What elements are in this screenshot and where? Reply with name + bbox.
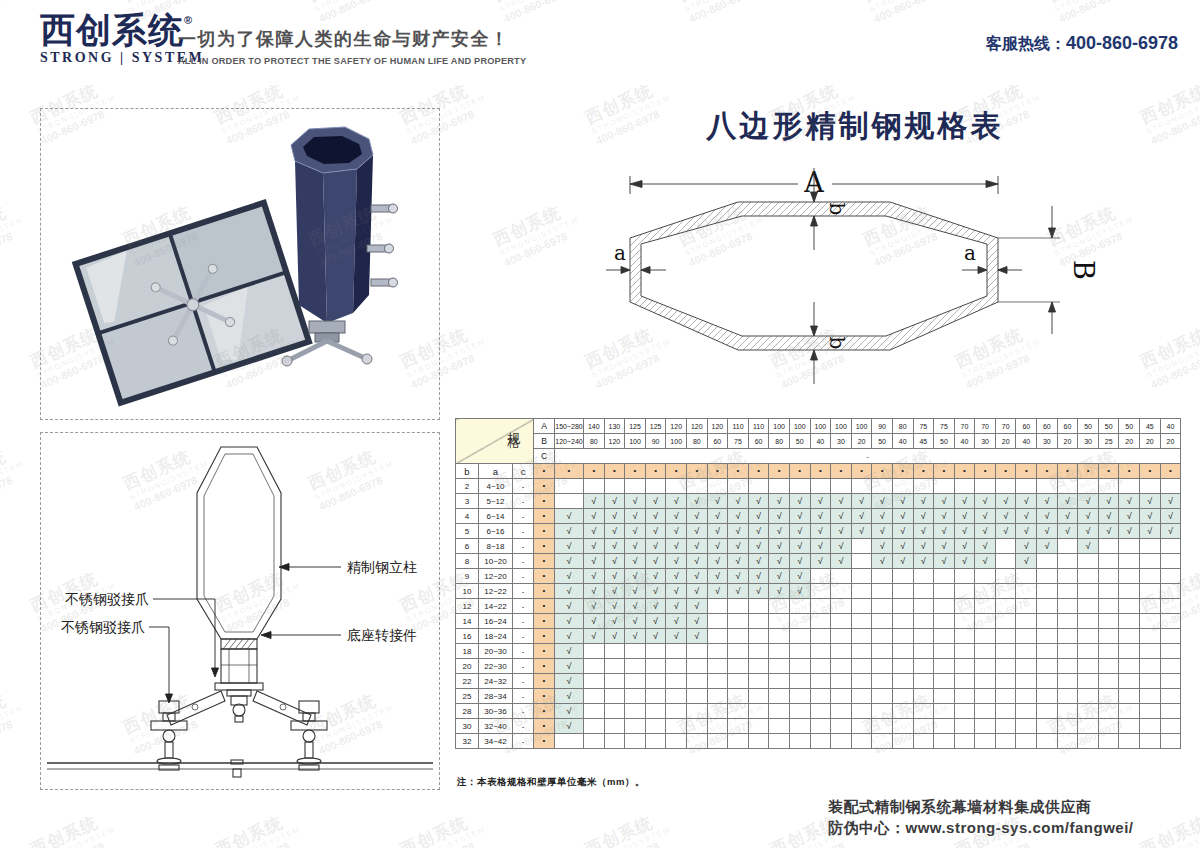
empty-cell xyxy=(1078,644,1099,659)
bullet-cell: • xyxy=(810,464,831,479)
check-cell: √ xyxy=(604,509,625,524)
empty-cell xyxy=(934,704,955,719)
empty-cell xyxy=(1098,569,1119,584)
empty-cell xyxy=(604,644,625,659)
check-cell: √ xyxy=(584,569,605,584)
check-cell: √ xyxy=(913,539,934,554)
thickness-a-range: 18~24 xyxy=(479,629,513,644)
bullet-cell: • xyxy=(534,614,555,629)
check-cell: √ xyxy=(584,524,605,539)
empty-cell xyxy=(954,704,975,719)
empty-cell xyxy=(1160,644,1181,659)
check-cell: √ xyxy=(555,539,584,554)
thickness-b-value: 8 xyxy=(456,554,479,569)
empty-cell xyxy=(1057,704,1078,719)
empty-cell xyxy=(995,674,1016,689)
bullet-cell: • xyxy=(604,464,625,479)
empty-cell xyxy=(934,614,955,629)
empty-cell xyxy=(975,479,996,494)
check-cell: √ xyxy=(1016,524,1037,539)
check-cell: √ xyxy=(728,509,749,524)
empty-cell xyxy=(769,659,790,674)
check-cell: √ xyxy=(769,524,790,539)
empty-cell xyxy=(728,689,749,704)
table-row: 1618~24-•√√√√√√√ xyxy=(456,629,1181,644)
check-cell: √ xyxy=(954,509,975,524)
empty-cell xyxy=(1140,644,1161,659)
check-cell: √ xyxy=(584,494,605,509)
bullet-cell: • xyxy=(1016,464,1037,479)
empty-cell xyxy=(1119,539,1140,554)
bullet-cell: • xyxy=(534,509,555,524)
empty-cell xyxy=(728,704,749,719)
check-cell: √ xyxy=(604,494,625,509)
empty-cell xyxy=(995,569,1016,584)
spec-A-value: 130 xyxy=(604,419,625,434)
empty-cell xyxy=(851,554,872,569)
empty-cell xyxy=(1016,644,1037,659)
thickness-b-value: 6 xyxy=(456,539,479,554)
bullet-cell: • xyxy=(645,464,666,479)
empty-cell xyxy=(666,719,687,734)
thickness-a-range: 14~22 xyxy=(479,599,513,614)
empty-cell xyxy=(851,614,872,629)
spec-A-value: 100 xyxy=(769,419,790,434)
empty-cell xyxy=(975,689,996,704)
check-cell: √ xyxy=(625,539,646,554)
spec-B-value: 100 xyxy=(666,434,687,449)
empty-cell xyxy=(995,479,1016,494)
check-cell: √ xyxy=(892,494,913,509)
supplier-footer: 装配式精制钢系统幕墙材料集成供应商 防伪中心：www.strong-sys.co… xyxy=(828,796,1133,838)
empty-cell xyxy=(748,689,769,704)
table-row: 2830~36-•√ xyxy=(456,704,1181,719)
empty-cell xyxy=(954,599,975,614)
empty-cell xyxy=(913,479,934,494)
bullet-cell: • xyxy=(584,464,605,479)
empty-cell xyxy=(789,614,810,629)
check-cell: √ xyxy=(604,629,625,644)
empty-cell xyxy=(1119,734,1140,749)
empty-cell xyxy=(1057,674,1078,689)
empty-cell xyxy=(1098,674,1119,689)
spec-A-value: 80 xyxy=(892,419,913,434)
empty-cell xyxy=(975,599,996,614)
empty-cell xyxy=(1160,689,1181,704)
spec-A-value: 60 xyxy=(1057,419,1078,434)
empty-cell xyxy=(913,734,934,749)
bullet-cell: • xyxy=(789,464,810,479)
empty-cell xyxy=(934,479,955,494)
tagline: 一切为了保障人类的生命与财产安全！ ALL IN ORDER TO PROTEC… xyxy=(178,27,526,66)
bullet-cell: • xyxy=(831,464,852,479)
empty-cell xyxy=(769,719,790,734)
empty-cell xyxy=(1037,644,1058,659)
empty-cell xyxy=(604,479,625,494)
empty-cell xyxy=(625,659,646,674)
spec-A-value: 90 xyxy=(872,419,893,434)
empty-cell xyxy=(831,644,852,659)
empty-cell xyxy=(1037,599,1058,614)
check-cell: √ xyxy=(1140,509,1161,524)
check-cell: √ xyxy=(707,509,728,524)
empty-cell xyxy=(789,629,810,644)
check-cell: √ xyxy=(769,554,790,569)
empty-cell xyxy=(872,719,893,734)
check-cell: √ xyxy=(831,509,852,524)
watermark-tile: 西创系统STRONG|SYSTEM400-860-6978 xyxy=(583,808,677,848)
empty-cell xyxy=(666,674,687,689)
empty-cell xyxy=(1098,539,1119,554)
spec-A-value: 70 xyxy=(954,419,975,434)
empty-cell xyxy=(851,479,872,494)
empty-cell xyxy=(954,734,975,749)
empty-cell xyxy=(748,659,769,674)
empty-cell xyxy=(555,479,584,494)
empty-cell xyxy=(1037,704,1058,719)
empty-cell xyxy=(1057,479,1078,494)
empty-cell xyxy=(851,659,872,674)
empty-cell xyxy=(686,704,707,719)
empty-cell xyxy=(810,689,831,704)
check-cell: √ xyxy=(748,509,769,524)
check-cell: √ xyxy=(954,554,975,569)
empty-cell xyxy=(851,539,872,554)
empty-cell xyxy=(1140,614,1161,629)
empty-cell xyxy=(1016,584,1037,599)
empty-cell xyxy=(789,704,810,719)
empty-cell xyxy=(851,674,872,689)
check-cell: √ xyxy=(769,569,790,584)
empty-cell xyxy=(1078,674,1099,689)
thickness-a-range: 6~14 xyxy=(479,509,513,524)
empty-cell xyxy=(1037,734,1058,749)
check-cell: √ xyxy=(666,509,687,524)
empty-cell xyxy=(1057,584,1078,599)
empty-cell xyxy=(625,704,646,719)
empty-cell xyxy=(995,659,1016,674)
empty-cell xyxy=(1078,719,1099,734)
empty-cell xyxy=(975,584,996,599)
check-cell: √ xyxy=(604,569,625,584)
spec-B-value: 20 xyxy=(995,434,1016,449)
empty-cell xyxy=(1098,704,1119,719)
check-cell: √ xyxy=(584,629,605,644)
spec-A-value: 75 xyxy=(913,419,934,434)
empty-cell xyxy=(975,674,996,689)
empty-cell xyxy=(892,629,913,644)
check-cell: √ xyxy=(728,494,749,509)
empty-cell xyxy=(789,644,810,659)
check-cell: √ xyxy=(666,614,687,629)
empty-cell xyxy=(686,479,707,494)
bullet-cell: • xyxy=(1057,464,1078,479)
empty-cell xyxy=(934,674,955,689)
check-cell: √ xyxy=(769,584,790,599)
check-cell: √ xyxy=(831,524,852,539)
check-cell: √ xyxy=(872,524,893,539)
thickness-c-value: - xyxy=(513,614,534,629)
empty-cell xyxy=(1057,644,1078,659)
watermark-tile: 西创系统STRONG|SYSTEM400-860-6978 xyxy=(0,442,30,513)
thickness-c-value: - xyxy=(513,569,534,584)
empty-cell xyxy=(1160,629,1181,644)
empty-cell xyxy=(1098,629,1119,644)
empty-cell xyxy=(913,704,934,719)
empty-cell xyxy=(851,584,872,599)
check-cell: √ xyxy=(769,539,790,554)
table-row: 912~20-•√√√√√√√√√√√√ xyxy=(456,569,1181,584)
spec-A-value: 100 xyxy=(789,419,810,434)
thickness-b-value: 16 xyxy=(456,629,479,644)
check-cell: √ xyxy=(892,554,913,569)
watermark-tile: 西创系统STRONG|SYSTEM400-860-6978 xyxy=(1138,808,1200,848)
thickness-header-a: a xyxy=(479,464,513,479)
spec-B-value: 120~240 xyxy=(555,434,584,449)
check-cell: √ xyxy=(686,509,707,524)
empty-cell xyxy=(686,659,707,674)
check-cell: √ xyxy=(666,494,687,509)
empty-cell xyxy=(1119,479,1140,494)
spec-A-value: 100 xyxy=(831,419,852,434)
empty-cell xyxy=(995,599,1016,614)
check-cell: √ xyxy=(555,689,584,704)
empty-cell xyxy=(954,689,975,704)
check-cell: √ xyxy=(810,539,831,554)
empty-cell xyxy=(995,719,1016,734)
thickness-c-value: - xyxy=(513,494,534,509)
check-cell: √ xyxy=(555,629,584,644)
empty-cell xyxy=(625,689,646,704)
check-cell: √ xyxy=(707,554,728,569)
watermark-tile: 西创系统STRONG|SYSTEM400-860-6978 xyxy=(306,0,400,25)
empty-cell xyxy=(1098,644,1119,659)
empty-cell xyxy=(892,659,913,674)
empty-cell xyxy=(892,719,913,734)
empty-cell xyxy=(584,734,605,749)
bullet-cell: • xyxy=(686,464,707,479)
bullet-cell: • xyxy=(625,464,646,479)
empty-cell xyxy=(1160,719,1181,734)
empty-cell xyxy=(1037,674,1058,689)
check-cell: √ xyxy=(789,569,810,584)
empty-cell xyxy=(769,704,790,719)
empty-cell xyxy=(1119,659,1140,674)
dim-a-right-label: a xyxy=(964,241,976,265)
thickness-b-value: 10 xyxy=(456,584,479,599)
empty-cell xyxy=(995,539,1016,554)
bullet-cell: • xyxy=(748,464,769,479)
watermark-tile: 西创系统STRONG|SYSTEM400-860-6978 xyxy=(676,0,770,25)
spec-B-value: 40 xyxy=(1016,434,1037,449)
check-cell: √ xyxy=(851,494,872,509)
empty-cell xyxy=(934,659,955,674)
empty-cell xyxy=(892,479,913,494)
empty-cell xyxy=(1160,674,1181,689)
thickness-c-value: - xyxy=(513,629,534,644)
empty-cell xyxy=(1037,569,1058,584)
check-cell: √ xyxy=(645,599,666,614)
table-row: 1416~24-•√√√√√√√ xyxy=(456,614,1181,629)
check-cell: √ xyxy=(707,569,728,584)
empty-cell xyxy=(831,569,852,584)
bullet-cell: • xyxy=(851,464,872,479)
thickness-a-range: 24~32 xyxy=(479,674,513,689)
thickness-b-value: 20 xyxy=(456,659,479,674)
empty-cell xyxy=(810,599,831,614)
empty-cell xyxy=(555,734,584,749)
empty-cell xyxy=(1057,719,1078,734)
empty-cell xyxy=(1057,734,1078,749)
bullet-cell: • xyxy=(534,644,555,659)
spec-A-value: 50 xyxy=(1098,419,1119,434)
thickness-b-value: 4 xyxy=(456,509,479,524)
empty-cell xyxy=(1016,689,1037,704)
empty-cell xyxy=(584,659,605,674)
empty-cell xyxy=(1119,614,1140,629)
empty-cell xyxy=(831,659,852,674)
thickness-c-value: - xyxy=(513,599,534,614)
empty-cell xyxy=(810,734,831,749)
spec-A-value: 60 xyxy=(1037,419,1058,434)
spec-B-value: 120 xyxy=(604,434,625,449)
empty-cell xyxy=(645,689,666,704)
spec-A-value: 70 xyxy=(975,419,996,434)
empty-cell xyxy=(1016,569,1037,584)
empty-cell xyxy=(1140,719,1161,734)
thickness-b-value: 2 xyxy=(456,479,479,494)
empty-cell xyxy=(975,704,996,719)
empty-cell xyxy=(625,479,646,494)
empty-cell xyxy=(645,704,666,719)
empty-cell xyxy=(913,569,934,584)
check-cell: √ xyxy=(1037,524,1058,539)
empty-cell xyxy=(1140,674,1161,689)
empty-cell xyxy=(954,644,975,659)
check-cell: √ xyxy=(831,494,852,509)
empty-cell xyxy=(625,674,646,689)
table-row: 3234~42-• xyxy=(456,734,1181,749)
check-cell: √ xyxy=(1140,524,1161,539)
thickness-a-range: 6~16 xyxy=(479,524,513,539)
empty-cell xyxy=(872,659,893,674)
empty-cell xyxy=(666,704,687,719)
spec-A-value: 125 xyxy=(645,419,666,434)
thickness-b-value: 3 xyxy=(456,494,479,509)
empty-cell xyxy=(831,704,852,719)
empty-cell xyxy=(1119,584,1140,599)
empty-cell xyxy=(769,479,790,494)
check-cell: √ xyxy=(686,614,707,629)
empty-cell xyxy=(892,599,913,614)
thickness-a-range: 20~30 xyxy=(479,644,513,659)
empty-cell xyxy=(954,584,975,599)
spec-B-value: 80 xyxy=(686,434,707,449)
thickness-b-value: 28 xyxy=(456,704,479,719)
empty-cell xyxy=(913,719,934,734)
spec-B-value: 20 xyxy=(851,434,872,449)
check-cell: √ xyxy=(872,494,893,509)
spec-A-value: 125 xyxy=(625,419,646,434)
table-row: 3032~40-•√ xyxy=(456,719,1181,734)
check-cell: √ xyxy=(748,584,769,599)
thickness-b-value: 5 xyxy=(456,524,479,539)
check-cell: √ xyxy=(686,629,707,644)
anti-fake-line: 防伪中心：www.strong-sys.com/fangwei/ xyxy=(828,817,1133,838)
empty-cell xyxy=(748,614,769,629)
thickness-c-value: - xyxy=(513,659,534,674)
thickness-c-value: - xyxy=(513,704,534,719)
empty-cell xyxy=(1057,689,1078,704)
thickness-a-range: 8~18 xyxy=(479,539,513,554)
empty-cell xyxy=(1119,599,1140,614)
check-cell: √ xyxy=(995,494,1016,509)
empty-cell xyxy=(686,644,707,659)
empty-cell xyxy=(1098,584,1119,599)
empty-cell xyxy=(954,674,975,689)
spec-B-value: 60 xyxy=(748,434,769,449)
empty-cell xyxy=(831,689,852,704)
check-cell: √ xyxy=(555,644,584,659)
check-cell: √ xyxy=(645,584,666,599)
table-row: 810~20-•√√√√√√√√√√√√√√√√√√√√√ xyxy=(456,554,1181,569)
empty-cell xyxy=(913,614,934,629)
empty-cell xyxy=(1119,689,1140,704)
empty-cell xyxy=(1160,479,1181,494)
spec-B-value: 20 xyxy=(1160,434,1181,449)
empty-cell xyxy=(1057,569,1078,584)
check-cell: √ xyxy=(625,599,646,614)
thickness-a-range: 30~36 xyxy=(479,704,513,719)
thickness-b-value: 22 xyxy=(456,674,479,689)
empty-cell xyxy=(645,644,666,659)
thickness-b-value: 9 xyxy=(456,569,479,584)
empty-cell xyxy=(1098,614,1119,629)
bullet-cell: • xyxy=(975,464,996,479)
check-cell: √ xyxy=(975,554,996,569)
empty-cell xyxy=(1160,599,1181,614)
empty-cell xyxy=(934,689,955,704)
empty-cell xyxy=(789,599,810,614)
empty-cell xyxy=(1016,734,1037,749)
check-cell: √ xyxy=(1016,509,1037,524)
empty-cell xyxy=(934,734,955,749)
check-cell: √ xyxy=(604,584,625,599)
empty-cell xyxy=(831,719,852,734)
empty-cell xyxy=(995,554,1016,569)
table-row: 35~12-•√√√√√√√√√√√√√√√√√√√√√√√√√√√√√ xyxy=(456,494,1181,509)
hotline-number: 400-860-6978 xyxy=(1066,33,1178,53)
check-cell: √ xyxy=(555,569,584,584)
empty-cell xyxy=(728,614,749,629)
empty-cell xyxy=(975,734,996,749)
empty-cell xyxy=(1140,539,1161,554)
empty-cell xyxy=(1098,719,1119,734)
check-cell: √ xyxy=(728,524,749,539)
check-cell: √ xyxy=(934,494,955,509)
bullet-cell: • xyxy=(534,719,555,734)
check-cell: √ xyxy=(645,539,666,554)
check-cell: √ xyxy=(872,539,893,554)
bullet-cell: • xyxy=(534,464,555,479)
row-label-B: B xyxy=(534,434,555,449)
check-cell: √ xyxy=(892,539,913,554)
check-cell: √ xyxy=(625,524,646,539)
detail-3d-panel xyxy=(40,108,440,420)
bullet-cell: • xyxy=(534,599,555,614)
check-cell: √ xyxy=(555,524,584,539)
empty-cell xyxy=(831,584,852,599)
